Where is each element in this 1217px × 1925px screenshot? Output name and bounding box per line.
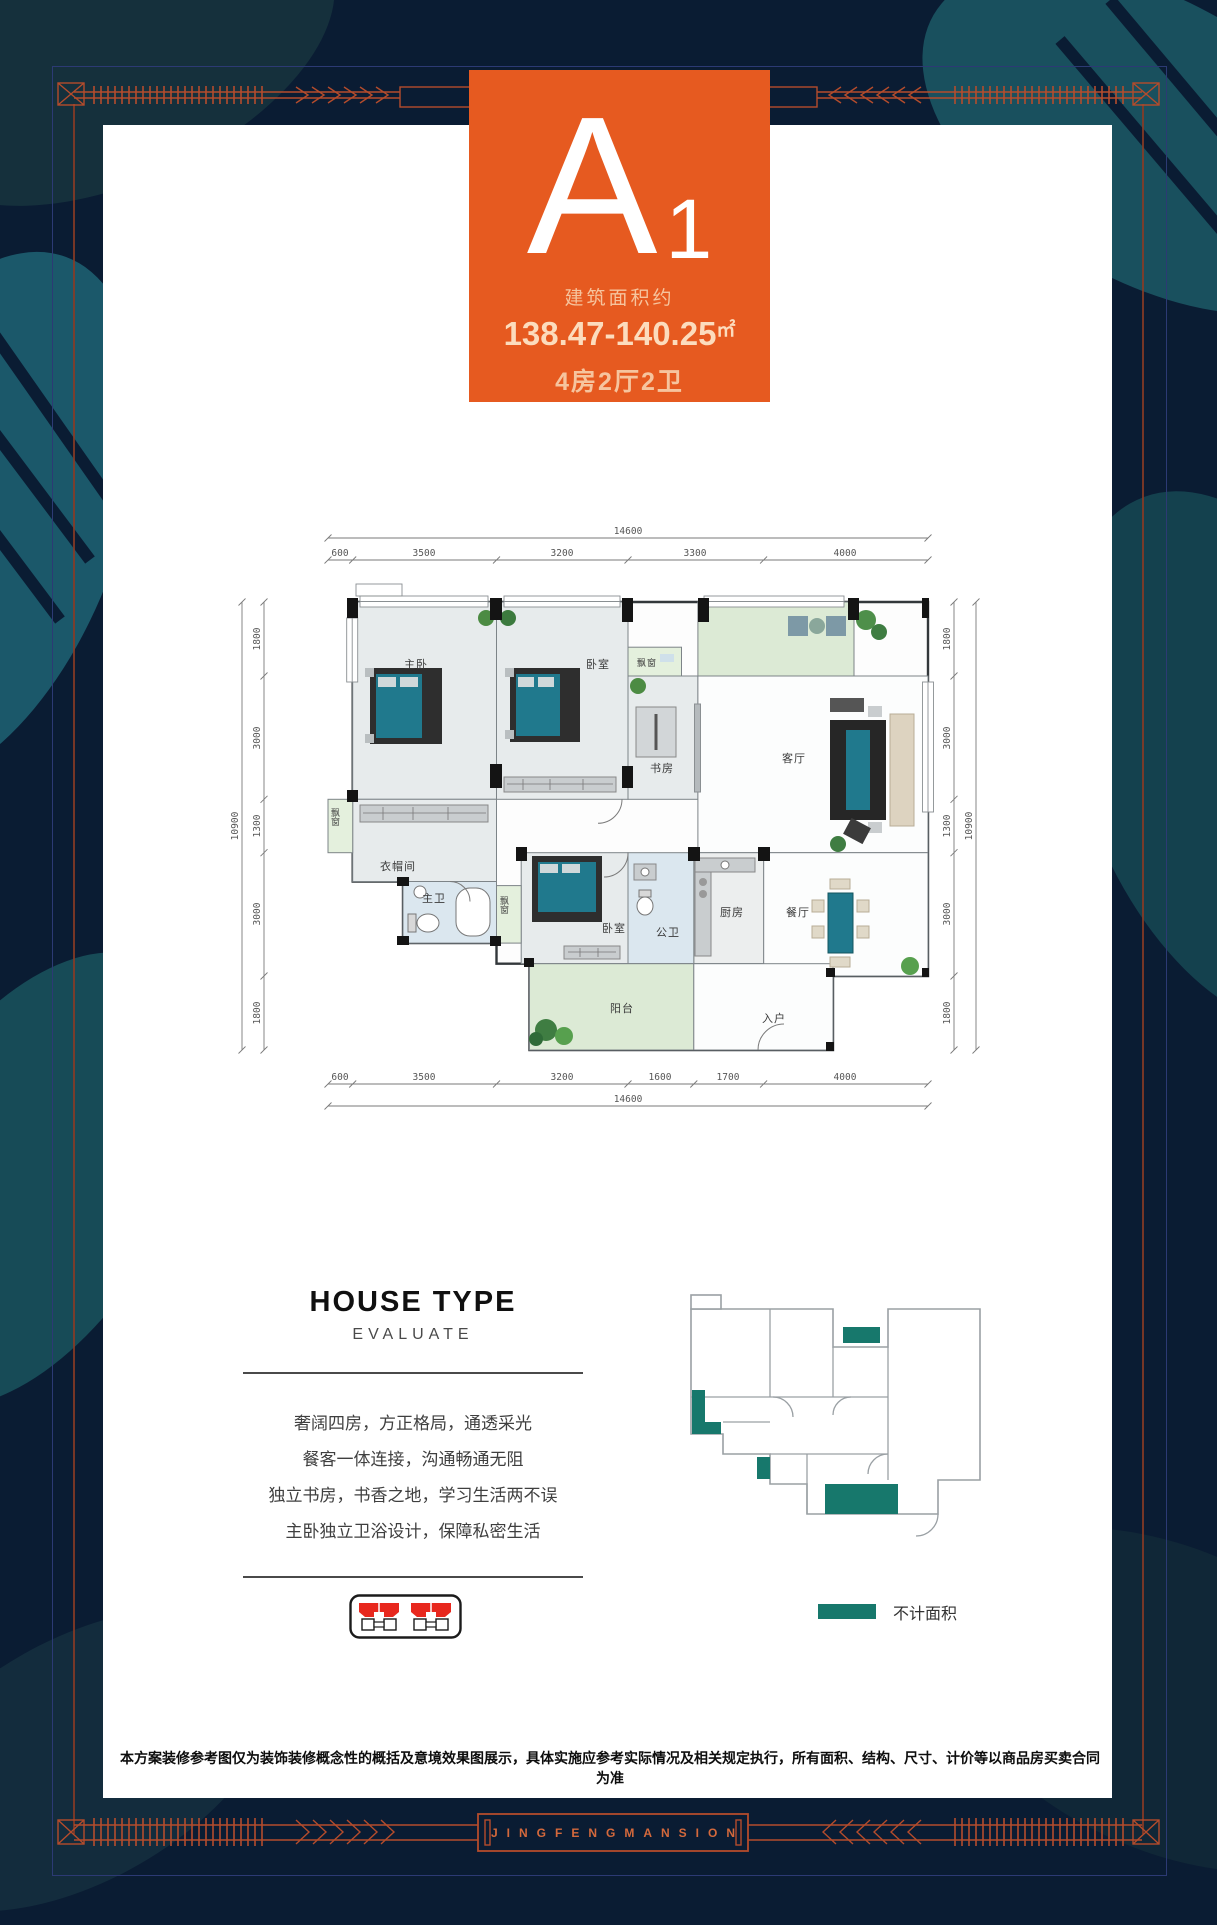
evaluate-line-3: 独立书房，书香之地，学习生活两不误 [203, 1478, 623, 1514]
label-balcony: 阳台 [610, 1001, 634, 1015]
unit-letter: A [527, 110, 658, 263]
label-public-bath: 公卫 [656, 927, 680, 939]
dining-table [828, 893, 853, 953]
svg-text:3500: 3500 [413, 548, 436, 559]
bathtub [456, 888, 490, 936]
house-type-heading: HOUSE TYPE EVALUATE [230, 1286, 596, 1344]
svg-text:600: 600 [331, 1072, 348, 1083]
svg-text:1700: 1700 [717, 1072, 740, 1083]
brand-text: JINGFENGMANSION [478, 1814, 748, 1851]
legend-label: 不计面积 [893, 1600, 957, 1624]
label-master-bath: 主卫 [422, 892, 446, 905]
svg-text:4000: 4000 [834, 548, 857, 559]
svg-text:3500: 3500 [413, 1072, 436, 1083]
label-bedroom-top: 卧室 [586, 657, 610, 671]
label-bay-lower: 飘窗 [499, 896, 509, 915]
svg-text:1800: 1800 [252, 1001, 263, 1024]
evaluate-lines: 奢阔四房，方正格局，通透采光 餐客一体连接，沟通畅通无阻 独立书房，书香之地，学… [203, 1406, 623, 1550]
tv-unit [830, 698, 864, 712]
toilet [417, 914, 439, 932]
label-cloakroom: 衣帽间 [380, 859, 416, 873]
divider-top [243, 1372, 583, 1374]
legend-swatch [818, 1604, 876, 1619]
label-dining: 餐厅 [786, 905, 810, 919]
area-unit: ㎡ [716, 320, 735, 341]
svg-text:14600: 14600 [614, 1094, 643, 1105]
svg-text:10900: 10900 [230, 811, 241, 840]
label-study: 书房 [650, 762, 674, 775]
evaluate-line-4: 主卧独立卫浴设计，保障私密生活 [203, 1514, 623, 1550]
evaluate-subtitle: EVALUATE [230, 1326, 596, 1344]
label-kitchen: 厨房 [720, 906, 744, 919]
svg-text:1300: 1300 [942, 814, 953, 837]
label-master: 主卧 [404, 658, 428, 671]
svg-text:3000: 3000 [942, 902, 953, 925]
svg-text:14600: 14600 [614, 526, 643, 537]
svg-text:3000: 3000 [252, 726, 263, 749]
label-entry: 入户 [762, 1011, 786, 1025]
svg-text:3200: 3200 [551, 548, 574, 559]
svg-text:10900: 10900 [964, 811, 975, 840]
unit-number: 1 [666, 196, 713, 263]
svg-text:1300: 1300 [252, 814, 263, 837]
svg-text:3200: 3200 [551, 1072, 574, 1083]
unit-badge: A 1 建筑面积约 138.47-140.25㎡ 4房2厅2卫 [469, 70, 770, 402]
svg-text:1800: 1800 [942, 1001, 953, 1024]
svg-text:3300: 3300 [684, 548, 707, 559]
floorplan: 14600 600 3500 3200 3300 4000 600 3500 3… [198, 522, 1006, 1140]
area-label: 建筑面积约 [564, 283, 674, 310]
svg-text:3000: 3000 [942, 726, 953, 749]
house-type-title: HOUSE TYPE [230, 1286, 596, 1319]
layout-value: 4房2厅2卫 [555, 362, 684, 398]
area-value: 138.47-140.25㎡ [504, 315, 736, 353]
svg-text:1800: 1800 [942, 627, 953, 650]
divider-bottom [243, 1576, 583, 1578]
sofa [890, 714, 914, 826]
svg-text:1800: 1800 [252, 627, 263, 650]
label-bay-study: 飘窗 [637, 657, 657, 668]
label-bay-left: 飘窗 [330, 808, 340, 827]
evaluate-line-2: 餐客一体连接，沟通畅通无阻 [203, 1442, 623, 1478]
side-border-right [1142, 104, 1144, 1834]
label-living: 客厅 [782, 751, 806, 765]
svg-text:1600: 1600 [649, 1072, 672, 1083]
mini-floorplan [655, 1262, 985, 1577]
svg-text:600: 600 [331, 548, 348, 559]
unit-keyplan-icon [349, 1594, 462, 1639]
disclaimer: 本方案装修参考图仅为装饰装修概念性的概括及意境效果图展示，具体实施应参考实际情况… [120, 1748, 1100, 1788]
svg-text:4000: 4000 [834, 1072, 857, 1083]
evaluate-line-1: 奢阔四房，方正格局，通透采光 [203, 1406, 623, 1442]
side-border-left [73, 104, 75, 1834]
label-bedroom-lower: 卧室 [602, 921, 626, 935]
svg-text:3000: 3000 [252, 902, 263, 925]
unit-name: A 1 [527, 110, 712, 263]
